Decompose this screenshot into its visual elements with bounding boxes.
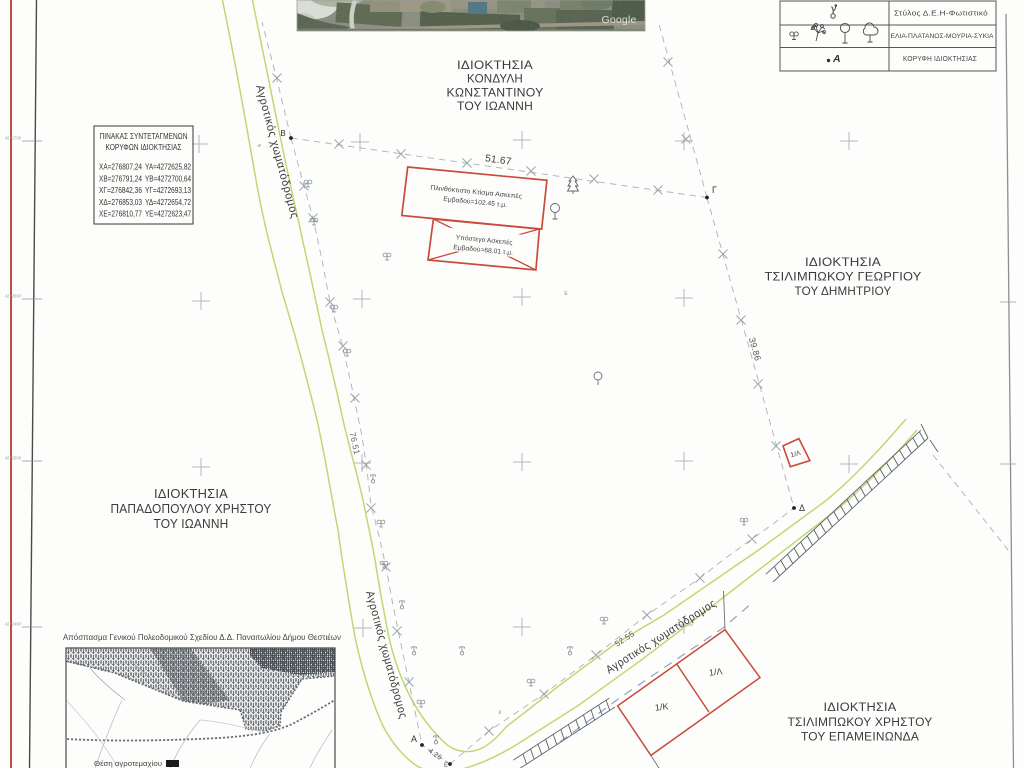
svg-text:ΥΔ=4272654,72: ΥΔ=4272654,72	[145, 198, 191, 207]
svg-text:ΤΟΥ ΙΩΑΝΝΗ: ΤΟΥ ΙΩΑΝΝΗ	[457, 99, 533, 113]
svg-text:ΤΣΙΛΙΜΠΩΚΟΥ ΧΡΗΣΤΟΥ: ΤΣΙΛΙΜΠΩΚΟΥ ΧΡΗΣΤΟΥ	[788, 717, 933, 729]
svg-text:ΚΩΝΣΤΑΝΤΙΝΟΥ: ΚΩΝΣΤΑΝΤΙΝΟΥ	[447, 85, 544, 99]
svg-text:4272400: 4272400	[5, 622, 22, 627]
svg-text:ΥΕ=4272623,47: ΥΕ=4272623,47	[145, 210, 191, 219]
svg-text:4272700: 4272700	[5, 136, 22, 141]
svg-text:ΧΔ=276853,03: ΧΔ=276853,03	[99, 198, 142, 207]
svg-text:1/Λ: 1/Λ	[708, 666, 723, 677]
svg-text:4272500: 4272500	[5, 456, 22, 461]
svg-text:ΠΑΠΑΔΟΠΟΥΛΟΥ ΧΡΗΣΤΟΥ: ΠΑΠΑΔΟΠΟΥΛΟΥ ΧΡΗΣΤΟΥ	[111, 502, 272, 516]
svg-text:1/Κ: 1/Κ	[654, 701, 668, 712]
svg-text:ΥΒ=4272700,64: ΥΒ=4272700,64	[145, 174, 191, 183]
svg-text:ΧΕ=276810,77: ΧΕ=276810,77	[99, 210, 142, 219]
svg-text:ΠΙΝΑΚΑΣ ΣΥΝΤΕΤΑΓΜΕΝΩΝ: ΠΙΝΑΚΑΣ ΣΥΝΤΕΤΑΓΜΕΝΩΝ	[100, 131, 188, 141]
svg-text:ΕΛΙΑ-ΠΛΑΤΑΝΟΣ-ΜΟΥΡΙΑ-ΣΥΚΙΑ: ΕΛΙΑ-ΠΛΑΤΑΝΟΣ-ΜΟΥΡΙΑ-ΣΥΚΙΑ	[891, 33, 995, 40]
svg-text:ε: ε	[499, 710, 502, 716]
svg-text:ΙΔΙΟΚΤΗΣΙΑ: ΙΔΙΟΚΤΗΣΙΑ	[457, 58, 533, 72]
svg-text:Στύλος Δ.Ε.Η-Φωτιστικό: Στύλος Δ.Ε.Η-Φωτιστικό	[894, 10, 988, 18]
svg-text:Α: Α	[411, 734, 417, 744]
svg-text:ΚΟΝΔΥΛΗ: ΚΟΝΔΥΛΗ	[467, 72, 523, 86]
svg-text:Θέση αγροτεμαχίου: Θέση αγροτεμαχίου	[94, 759, 162, 768]
svg-text:ΧΓ=276842,36: ΧΓ=276842,36	[99, 186, 142, 195]
svg-text:Απόσπασμα Γενικού Πολεοδομικού: Απόσπασμα Γενικού Πολεοδομικού Σχεδίου Δ…	[63, 632, 341, 642]
svg-text:ΚΟΡΥΦΩΝ ΙΔΙΟΚΤΗΣΙΑΣ: ΚΟΡΥΦΩΝ ΙΔΙΟΚΤΗΣΙΑΣ	[106, 142, 182, 152]
svg-text:ΧΑ=276807,24: ΧΑ=276807,24	[99, 163, 142, 172]
svg-text:ΥΓ=4272693,13: ΥΓ=4272693,13	[145, 186, 191, 195]
svg-text:ΚΟΡΥΦΗ ΙΔΙΟΚΤΗΣΙΑΣ: ΚΟΡΥΦΗ ΙΔΙΟΚΤΗΣΙΑΣ	[903, 56, 977, 63]
svg-text:ΥΑ=4272625,82: ΥΑ=4272625,82	[145, 163, 191, 172]
svg-text:ΧΒ=276791,24: ΧΒ=276791,24	[99, 174, 142, 183]
svg-text:Γ: Γ	[712, 185, 717, 195]
svg-text:ΙΔΙΟΚΤΗΣΙΑ: ΙΔΙΟΚΤΗΣΙΑ	[154, 487, 228, 501]
svg-text:4272600: 4272600	[5, 294, 22, 299]
svg-text:Δ: Δ	[799, 503, 805, 513]
svg-text:Ε: Ε	[444, 763, 448, 768]
svg-text:ΤΣΙΛΙΜΠΩΚΟΥ ΓΕΩΡΓΙΟΥ: ΤΣΙΛΙΜΠΩΚΟΥ ΓΕΩΡΓΙΟΥ	[765, 270, 922, 284]
svg-text:Α: Α	[832, 53, 841, 65]
svg-text:ΤΟΥ ΕΠΑΜΕΙΝΩΝΔΑ: ΤΟΥ ΕΠΑΜΕΙΝΩΝΔΑ	[801, 732, 919, 744]
svg-text:ΤΟΥ ΙΩΑΝΝΗ: ΤΟΥ ΙΩΑΝΝΗ	[154, 517, 229, 531]
svg-text:ΤΟΥ ΔΗΜΗΤΡΙΟΥ: ΤΟΥ ΔΗΜΗΤΡΙΟΥ	[795, 284, 892, 298]
svg-text:Β: Β	[280, 129, 285, 138]
svg-text:ΙΔΙΟΚΤΗΣΙΑ: ΙΔΙΟΚΤΗΣΙΑ	[805, 255, 881, 269]
svg-text:ΙΔΙΟΚΤΗΣΙΑ: ΙΔΙΟΚΤΗΣΙΑ	[824, 702, 897, 714]
